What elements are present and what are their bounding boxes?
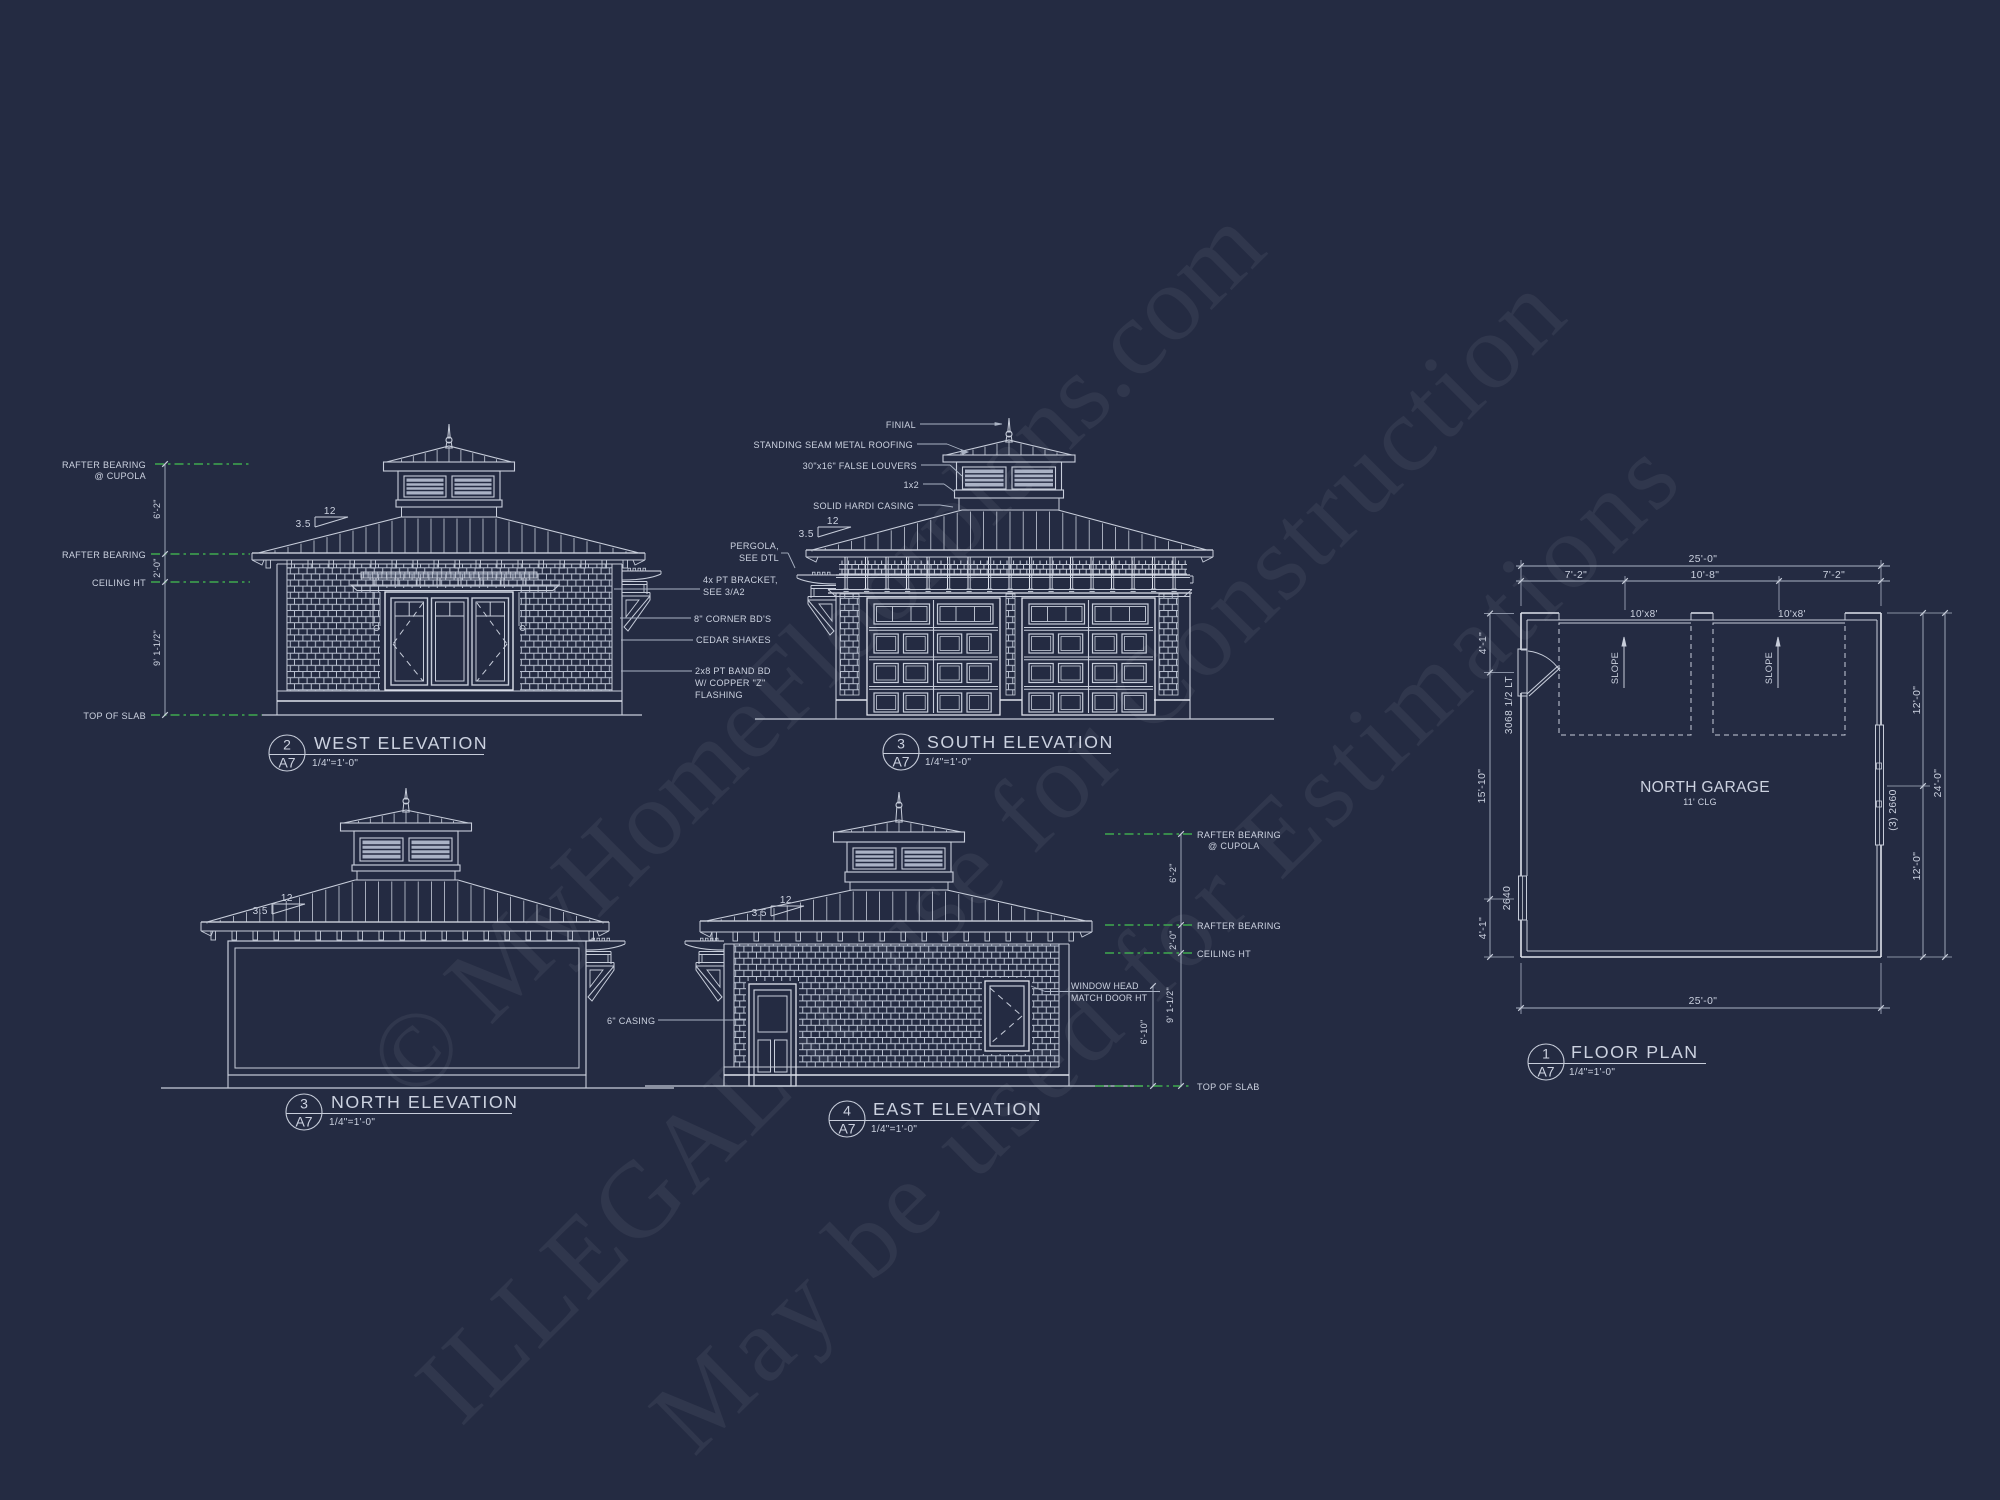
svg-text:8" CORNER BD'S: 8" CORNER BD'S	[694, 614, 771, 624]
svg-text:SEE 3/A2: SEE 3/A2	[703, 587, 745, 597]
svg-text:10'-8": 10'-8"	[1691, 570, 1720, 581]
svg-text:FLOOR PLAN: FLOOR PLAN	[1571, 1042, 1699, 1062]
svg-text:25'-0": 25'-0"	[1689, 996, 1718, 1007]
svg-text:A7: A7	[1537, 1064, 1554, 1080]
svg-text:4: 4	[843, 1103, 851, 1119]
svg-text:6" CASING: 6" CASING	[607, 1016, 655, 1026]
svg-text:RAFTER BEARING: RAFTER BEARING	[62, 550, 146, 560]
svg-text:12: 12	[780, 895, 792, 906]
svg-text:11' CLG: 11' CLG	[1683, 797, 1716, 807]
svg-text:2: 2	[283, 737, 291, 753]
svg-text:3.5: 3.5	[752, 908, 767, 919]
svg-text:SEE DTL: SEE DTL	[739, 553, 779, 563]
svg-text:9' 1-1/2": 9' 1-1/2"	[152, 630, 162, 666]
svg-text:WEST ELEVATION: WEST ELEVATION	[314, 733, 488, 753]
svg-text:3: 3	[300, 1096, 308, 1112]
svg-text:4'-1": 4'-1"	[1478, 632, 1489, 655]
svg-text:1/4"=1'-0": 1/4"=1'-0"	[1569, 1067, 1615, 1078]
svg-text:A7: A7	[278, 755, 295, 771]
svg-text:NORTH ELEVATION: NORTH ELEVATION	[331, 1092, 519, 1112]
svg-text:4'-1": 4'-1"	[1478, 917, 1489, 940]
svg-text:TOP OF SLAB: TOP OF SLAB	[83, 711, 146, 721]
svg-text:4x PT BRACKET,: 4x PT BRACKET,	[703, 575, 778, 585]
svg-text:CEDAR SHAKES: CEDAR SHAKES	[696, 635, 771, 645]
svg-text:CEILING HT: CEILING HT	[92, 578, 146, 588]
svg-text:W/ COPPER "Z": W/ COPPER "Z"	[695, 678, 765, 688]
svg-text:NORTH GARAGE: NORTH GARAGE	[1640, 779, 1770, 796]
svg-text:3.5: 3.5	[253, 906, 268, 917]
svg-text:12'-0": 12'-0"	[1912, 686, 1923, 715]
svg-text:2x8 PT BAND BD: 2x8 PT BAND BD	[695, 666, 771, 676]
svg-text:7'-2": 7'-2"	[1565, 570, 1588, 581]
svg-text:12'-0": 12'-0"	[1912, 852, 1923, 881]
svg-text:12: 12	[281, 893, 293, 904]
svg-text:7'-2": 7'-2"	[1823, 570, 1846, 581]
svg-text:@ CUPOLA: @ CUPOLA	[94, 471, 146, 481]
svg-text:SLOPE: SLOPE	[1610, 652, 1620, 684]
svg-text:1/4"=1'-0": 1/4"=1'-0"	[871, 1124, 917, 1135]
svg-text:@ CUPOLA: @ CUPOLA	[1208, 841, 1260, 851]
svg-text:PERGOLA,: PERGOLA,	[730, 541, 779, 551]
svg-text:1x2: 1x2	[903, 480, 919, 490]
svg-text:(3) 2660: (3) 2660	[1888, 789, 1899, 831]
svg-text:SOUTH ELEVATION: SOUTH ELEVATION	[927, 732, 1114, 752]
svg-text:SLOPE: SLOPE	[1764, 652, 1774, 684]
svg-text:6'-2": 6'-2"	[152, 499, 162, 519]
svg-text:WINDOW HEAD: WINDOW HEAD	[1071, 981, 1139, 991]
svg-text:FINIAL: FINIAL	[886, 420, 916, 430]
svg-text:FLASHING: FLASHING	[695, 690, 743, 700]
svg-text:STANDING SEAM METAL ROOFING: STANDING SEAM METAL ROOFING	[753, 440, 913, 450]
svg-text:12: 12	[324, 506, 336, 517]
svg-text:2'-0": 2'-0"	[1168, 930, 1178, 950]
svg-text:12: 12	[827, 516, 839, 527]
svg-text:24'-0": 24'-0"	[1933, 769, 1944, 798]
svg-text:CEILING HT: CEILING HT	[1197, 949, 1251, 959]
svg-text:30"x16" FALSE LOUVERS: 30"x16" FALSE LOUVERS	[803, 461, 917, 471]
svg-text:SOLID HARDI CASING: SOLID HARDI CASING	[813, 501, 914, 511]
svg-text:1/4"=1'-0": 1/4"=1'-0"	[329, 1117, 375, 1128]
svg-text:A7: A7	[838, 1121, 855, 1137]
svg-text:2'-0": 2'-0"	[152, 558, 162, 578]
svg-text:RAFTER BEARING: RAFTER BEARING	[1197, 830, 1281, 840]
svg-text:RAFTER BEARING: RAFTER BEARING	[62, 460, 146, 470]
svg-text:9' 1-1/2": 9' 1-1/2"	[1165, 987, 1175, 1023]
svg-text:RAFTER BEARING: RAFTER BEARING	[1197, 921, 1281, 931]
svg-text:1: 1	[1542, 1046, 1550, 1062]
svg-text:3.5: 3.5	[296, 519, 311, 530]
svg-text:25'-0": 25'-0"	[1689, 554, 1718, 565]
svg-text:15'-10": 15'-10"	[1477, 769, 1488, 804]
svg-text:1/4"=1'-0": 1/4"=1'-0"	[925, 757, 971, 768]
svg-text:1/4"=1'-0": 1/4"=1'-0"	[312, 758, 358, 769]
svg-text:10'x8': 10'x8'	[1778, 609, 1806, 620]
svg-text:TOP OF SLAB: TOP OF SLAB	[1197, 1082, 1260, 1092]
svg-text:2640: 2640	[1502, 886, 1513, 911]
svg-text:MATCH DOOR HT: MATCH DOOR HT	[1071, 993, 1148, 1003]
svg-text:3.5: 3.5	[799, 529, 814, 540]
svg-text:A7: A7	[892, 754, 909, 770]
svg-text:A7: A7	[295, 1114, 312, 1130]
svg-text:EAST ELEVATION: EAST ELEVATION	[873, 1099, 1042, 1119]
svg-text:6'-2": 6'-2"	[1168, 863, 1178, 883]
svg-text:3068 1/2 LT: 3068 1/2 LT	[1504, 676, 1515, 734]
svg-text:6'-10": 6'-10"	[1139, 1020, 1149, 1045]
svg-text:3: 3	[897, 736, 905, 752]
svg-text:10'x8': 10'x8'	[1630, 609, 1658, 620]
